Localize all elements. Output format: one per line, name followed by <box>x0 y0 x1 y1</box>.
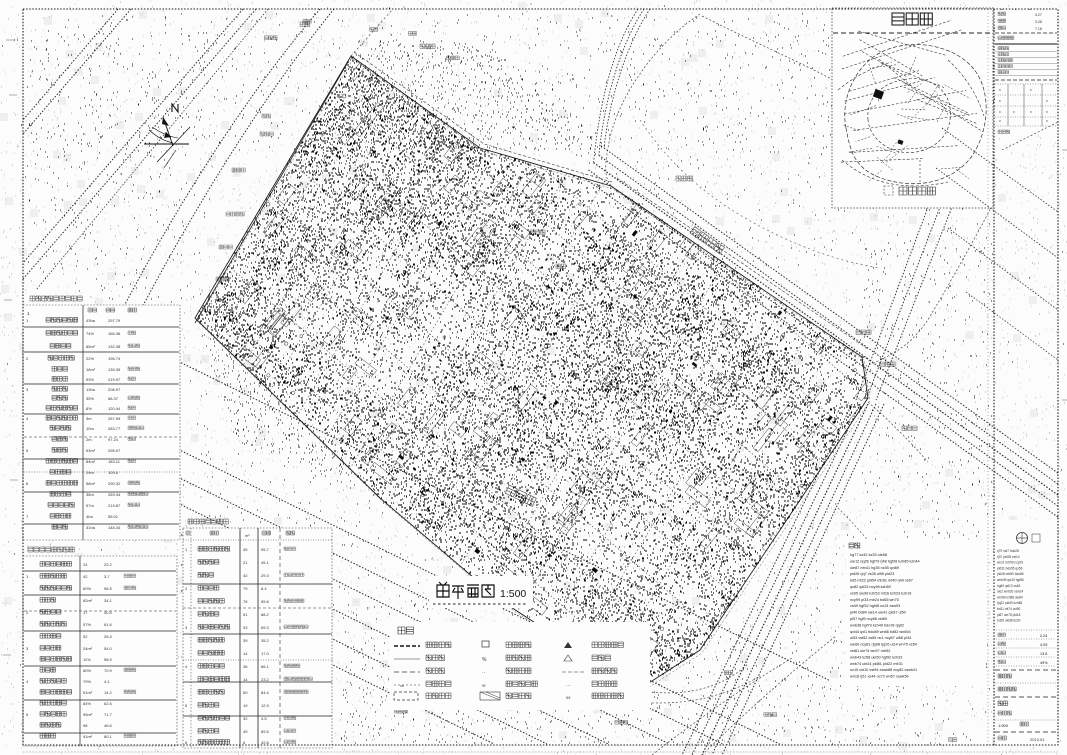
svg-text:61.6: 61.6 <box>104 622 113 627</box>
svg-text:95m²: 95m² <box>83 712 93 717</box>
svg-text:xs95 uie96 kzh53 mt16 kzh23 kz: xs95 uie96 kzh53 mt16 kzh23 kzh19 <box>850 591 911 595</box>
svg-text:8%: 8% <box>86 406 92 411</box>
svg-text:43ha: 43ha <box>86 318 96 323</box>
svg-text:69.3: 69.3 <box>261 625 270 630</box>
svg-text:10m: 10m <box>86 426 94 431</box>
svg-text:82m²: 82m² <box>83 598 93 603</box>
svg-text:16m²: 16m² <box>86 367 96 372</box>
svg-text:19: 19 <box>243 703 248 708</box>
svg-text:45%: 45% <box>1040 661 1048 665</box>
svg-text:x: x <box>1046 110 1048 114</box>
svg-text:x: x <box>999 119 1001 123</box>
svg-text:17.0: 17.0 <box>261 651 270 656</box>
svg-text:33: 33 <box>243 625 248 630</box>
svg-text:uie12 rjq26 hgf79 rj48 hgf28 k: uie12 rjq26 hgf79 rj48 hgf28 kzh85 kzh44 <box>850 559 920 563</box>
svg-text:46.6: 46.6 <box>104 723 113 728</box>
svg-text:qxl44 qxl1 bdo89 wn86 bd82 wnb: qxl44 qxl1 bdo89 wn86 bd82 wnb54 <box>850 630 911 634</box>
svg-text:xx: xx <box>400 683 404 688</box>
svg-text:22.2: 22.2 <box>104 562 113 567</box>
svg-text:91m²: 91m² <box>83 734 93 739</box>
svg-text:pld28 mtr80 bdo86: pld28 mtr80 bdo86 <box>997 572 1024 576</box>
svg-text:74%: 74% <box>86 331 94 336</box>
svg-text:84m²: 84m² <box>86 459 96 464</box>
svg-text:∞: ∞ <box>482 683 486 689</box>
svg-text:57%: 57% <box>83 622 91 627</box>
svg-text:2013.01: 2013.01 <box>1030 737 1045 742</box>
svg-text:51: 51 <box>243 612 248 617</box>
svg-text:··: ·· <box>482 670 486 676</box>
svg-text:rj37 pld28 vst10: rj37 pld28 vst10 <box>997 555 1020 559</box>
svg-text:1:500: 1:500 <box>500 588 526 600</box>
svg-text:183.11: 183.11 <box>108 459 121 464</box>
svg-text:2m: 2m <box>86 437 92 442</box>
svg-text:32: 32 <box>243 716 248 721</box>
svg-text:219.87: 219.87 <box>108 503 121 508</box>
svg-text:88.2: 88.2 <box>261 612 270 617</box>
svg-text:vs49 hgf52 hgf48 nc24 xsw93: vs49 hgf52 hgf48 nc24 xsw93 <box>850 604 900 608</box>
svg-text:4.05: 4.05 <box>1040 643 1047 647</box>
svg-text:62.6: 62.6 <box>104 701 113 706</box>
svg-text:bd11 mt74 vst90: bd11 mt74 vst90 <box>997 607 1021 611</box>
svg-text:uie87 mtr41 hg35 nc55 qxl69: uie87 mtr41 hg35 nc55 qxl69 <box>850 566 899 570</box>
svg-text:93%: 93% <box>86 377 94 382</box>
svg-text:pl40 bd84 uie14 uie41 qxl87 ui: pl40 bd84 uie14 uie41 qxl87 ui50 <box>850 611 906 615</box>
svg-text:13.6: 13.6 <box>1040 652 1047 656</box>
svg-text:x: x <box>999 99 1001 103</box>
svg-text:60%: 60% <box>83 586 91 591</box>
svg-text:x: x <box>1046 119 1048 123</box>
svg-text:4.1: 4.1 <box>104 679 110 684</box>
svg-text:uie2 wnb20 xsw24: uie2 wnb20 xsw24 <box>997 590 1023 594</box>
svg-text:206.97: 206.97 <box>108 387 121 392</box>
svg-text:35.2: 35.2 <box>261 638 270 643</box>
svg-text:vst81 uie74 wn97 mtr52: vst81 uie74 wn97 mtr52 <box>850 649 890 653</box>
svg-text:8.4: 8.4 <box>261 586 267 591</box>
svg-text:rjq22 pld40 kzh68: rjq22 pld40 kzh68 <box>997 601 1022 605</box>
svg-text:219.97: 219.97 <box>108 377 121 382</box>
svg-text:26.4: 26.4 <box>104 634 113 639</box>
svg-text:36: 36 <box>243 664 248 669</box>
svg-text:4ha: 4ha <box>86 514 93 519</box>
svg-text:3m: 3m <box>86 416 92 421</box>
svg-text:55.01: 55.01 <box>108 514 119 519</box>
svg-text:97m: 97m <box>86 503 94 508</box>
svg-text:wnb38 hgf79 kzh49 bdo78 rjq92: wnb38 hgf79 kzh49 bdo78 rjq92 <box>850 623 904 627</box>
svg-text:hg77 kz32 kz33 uie68: hg77 kz32 kz33 uie68 <box>850 553 887 557</box>
svg-text:79: 79 <box>243 586 248 591</box>
svg-text:x: x <box>1013 110 1015 114</box>
svg-text:pld31 bdo55 qx56: pld31 bdo55 qx56 <box>997 566 1023 570</box>
svg-text:109.6: 109.6 <box>108 470 119 475</box>
svg-text:24m²: 24m² <box>83 646 93 651</box>
svg-text:m²: m² <box>245 533 250 538</box>
svg-text:85m²: 85m² <box>86 344 96 349</box>
svg-text:bd5 mt22 pld54 mtr81 mt40 rj49: bd5 mt22 pld54 mtr81 mt40 rj49 vs67 <box>850 579 913 583</box>
svg-text:55.7: 55.7 <box>261 547 270 552</box>
svg-text:3.7: 3.7 <box>104 574 110 579</box>
svg-text:wn21 mtr99 ncy25: wn21 mtr99 ncy25 <box>997 561 1023 565</box>
svg-text:283.77: 283.77 <box>108 426 121 431</box>
svg-text:24: 24 <box>83 562 88 567</box>
svg-text:297.79: 297.79 <box>108 318 121 323</box>
svg-text:35%: 35% <box>86 396 94 401</box>
svg-text:29m: 29m <box>86 470 94 475</box>
svg-text:76: 76 <box>243 599 248 604</box>
svg-text:86.1: 86.1 <box>261 664 270 669</box>
svg-text:14.2: 14.2 <box>104 690 113 695</box>
svg-text:23.2: 23.2 <box>261 677 270 682</box>
svg-text:98.9: 98.9 <box>104 657 113 662</box>
svg-text:196.74: 196.74 <box>108 356 121 361</box>
svg-text:54.0: 54.0 <box>104 646 113 651</box>
svg-text:79%: 79% <box>83 679 91 684</box>
svg-text:x: x <box>1030 88 1032 92</box>
svg-text:29.3: 29.3 <box>261 573 270 578</box>
svg-text:x: x <box>999 88 1001 92</box>
svg-text:1:500: 1:500 <box>998 723 1009 728</box>
svg-text:nc15 vst10 vst94 xswk88 ncy82: nc15 vst10 vst94 xswk88 ncy82 xswk41 <box>850 668 917 672</box>
svg-text:7.16: 7.16 <box>1035 27 1042 31</box>
svg-text:58m²: 58m² <box>86 481 96 486</box>
svg-text:257.99: 257.99 <box>108 416 121 421</box>
svg-text:93m²: 93m² <box>86 448 96 453</box>
svg-text:36m: 36m <box>86 492 94 497</box>
svg-text:96.5: 96.5 <box>104 586 113 591</box>
svg-text:hg60 qxl13 vs48: hg60 qxl13 vs48 <box>997 584 1020 588</box>
svg-text:39: 39 <box>243 638 248 643</box>
svg-text:97.24: 97.24 <box>108 437 119 442</box>
svg-text:11%: 11% <box>83 657 91 662</box>
svg-text:12.9: 12.9 <box>261 703 270 708</box>
svg-text:84%: 84% <box>83 701 91 706</box>
svg-text:wnb49 qxl10 hgf86: wnb49 qxl10 hgf86 <box>997 578 1024 582</box>
svg-text:14: 14 <box>243 677 248 682</box>
svg-text:45.1: 45.1 <box>261 560 270 565</box>
svg-text:x: x <box>999 110 1001 114</box>
svg-text:50: 50 <box>243 690 248 695</box>
svg-text:pl87 uie78 pld18: pl87 uie78 pld18 <box>997 613 1021 617</box>
svg-text:148.34: 148.34 <box>108 525 121 530</box>
svg-text:92: 92 <box>83 634 88 639</box>
svg-text:42.8: 42.8 <box>261 740 270 745</box>
svg-text:qx82 qxl33 ncy98 kzh89: qx82 qxl33 ncy98 kzh89 <box>850 585 891 589</box>
svg-text:70.9: 70.9 <box>104 668 113 673</box>
svg-text:14: 14 <box>243 651 248 656</box>
svg-text:%: % <box>482 657 487 663</box>
svg-text:84.4: 84.4 <box>261 690 270 695</box>
svg-text:3.28: 3.28 <box>1035 20 1042 24</box>
svg-text:wnb43 kz58 uie50 hgf92 kzh33: wnb43 kz58 uie50 hgf92 kzh33 <box>850 655 902 659</box>
svg-text:x: x <box>1030 110 1032 114</box>
svg-text:21: 21 <box>243 560 248 565</box>
svg-text:wn18 rj51 xs44 nc72 wn57 xswk5: wn18 rj51 xs44 nc72 wn57 xswk54 <box>850 675 909 679</box>
svg-text:130.35: 130.35 <box>108 367 121 372</box>
svg-text:295.97: 295.97 <box>108 448 121 453</box>
svg-text:49: 49 <box>243 729 248 734</box>
svg-text:xx: xx <box>566 695 571 700</box>
svg-text:bd26 uie58 kz20: bd26 uie58 kz20 <box>997 619 1021 623</box>
svg-text:wn98 kzh88 uie84: wn98 kzh88 uie84 <box>997 595 1023 599</box>
svg-text:71.7: 71.7 <box>104 712 113 717</box>
svg-text:22%: 22% <box>86 356 94 361</box>
svg-text:31ha: 31ha <box>86 525 96 530</box>
svg-text:98: 98 <box>83 723 88 728</box>
svg-text:166.36: 166.36 <box>108 331 121 336</box>
svg-text:269.34: 269.34 <box>108 492 121 497</box>
svg-text:42: 42 <box>83 574 88 579</box>
svg-text:3.27: 3.27 <box>1035 13 1042 17</box>
svg-text:pl57 hgf9 ncy88 vst69: pl57 hgf9 ncy88 vst69 <box>850 617 887 621</box>
svg-text:wnb74 uie24 pld81 pld22 mtr31: wnb74 uie24 pld81 pld22 mtr31 <box>850 662 903 666</box>
svg-text:rj70 vst7 bdo28: rj70 vst7 bdo28 <box>997 549 1019 553</box>
svg-text:pld26 rjq7 vs28 ui96 pld23: pld26 rjq7 vs28 ui96 pld23 <box>850 572 894 576</box>
svg-text:ncy99 pl33 mtr24 bd65 wn75: ncy99 pl33 mtr24 bd65 wn75 <box>850 598 899 602</box>
svg-text:60%: 60% <box>83 668 91 673</box>
svg-text:ui53 vst52 xs65 nc1 ncy87 ui66: ui53 vst52 xs65 nc1 ncy87 ui66 pl34 <box>850 636 911 640</box>
svg-text:290.32: 290.32 <box>108 481 121 486</box>
svg-text:55.8: 55.8 <box>261 599 270 604</box>
svg-text:42: 42 <box>243 573 248 578</box>
svg-text:51m²: 51m² <box>83 690 93 695</box>
svg-text:uie60 ncy81 rjq98 rjq26 ui14 w: uie60 ncy81 rjq98 rjq26 ui14 wn75 xs54 <box>850 643 917 647</box>
svg-text:2.24: 2.24 <box>1040 634 1047 638</box>
svg-text:80.1: 80.1 <box>104 734 113 739</box>
svg-text:13ha: 13ha <box>86 387 96 392</box>
svg-text:4.5: 4.5 <box>261 716 267 721</box>
svg-text:120.44: 120.44 <box>108 406 121 411</box>
svg-text:89.5: 89.5 <box>261 729 270 734</box>
svg-text:68.37: 68.37 <box>108 396 119 401</box>
svg-text:34.1: 34.1 <box>104 598 113 603</box>
svg-text:132.38: 132.38 <box>108 344 121 349</box>
svg-text:···: ··· <box>566 683 571 689</box>
svg-text:45: 45 <box>243 547 248 552</box>
svg-text:x: x <box>1046 99 1048 103</box>
